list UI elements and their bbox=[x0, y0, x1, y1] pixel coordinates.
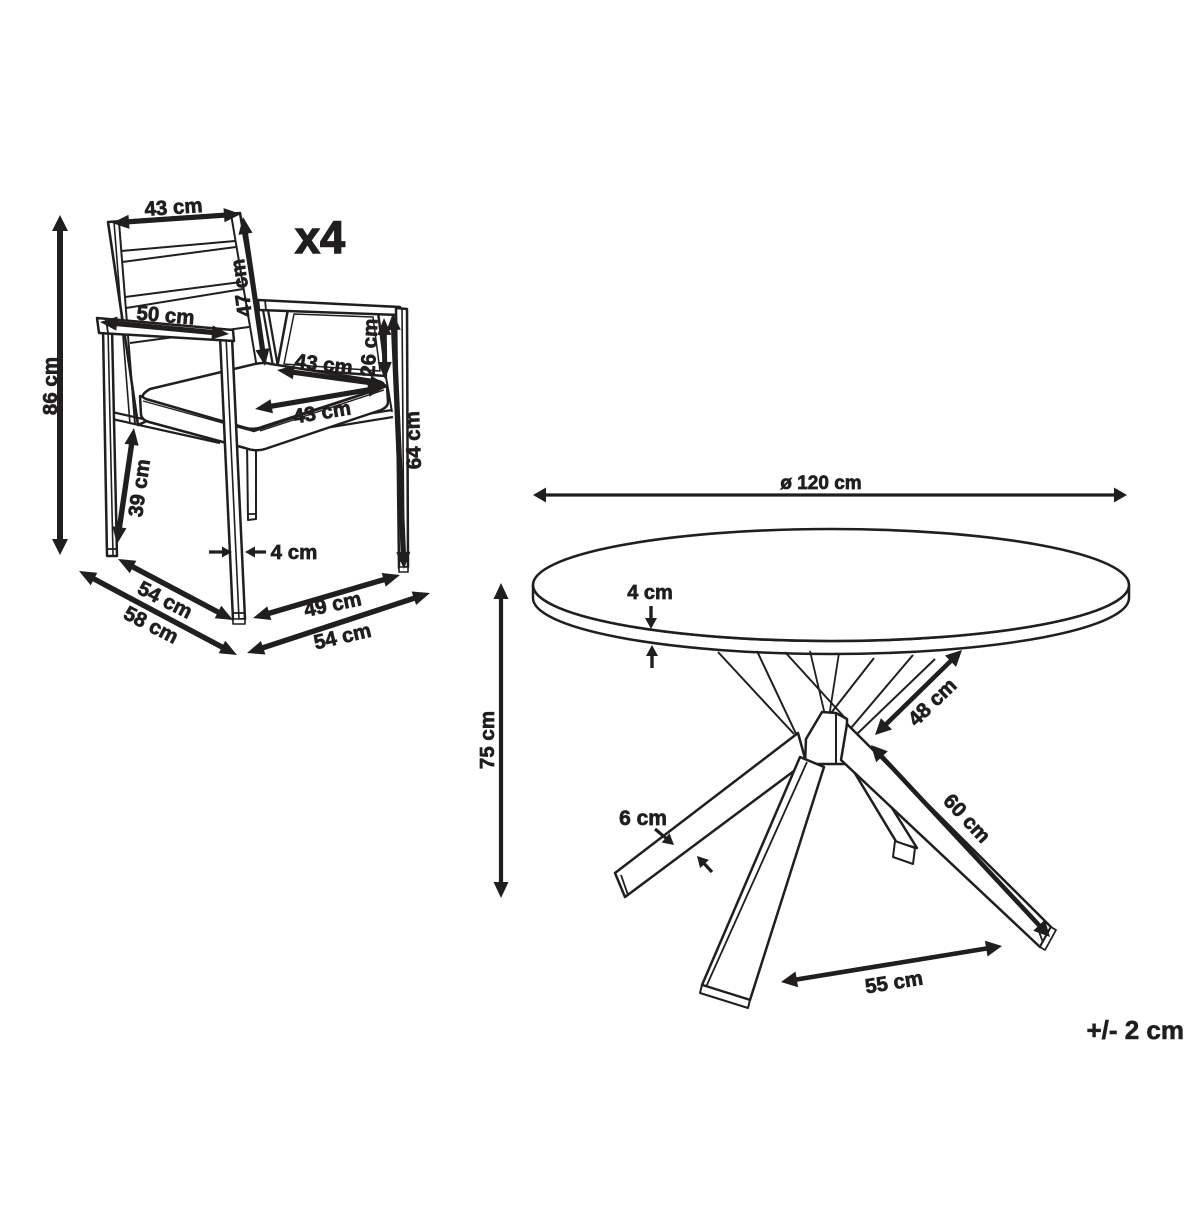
svg-text:43 cm: 43 cm bbox=[144, 194, 204, 221]
svg-text:4 cm: 4 cm bbox=[271, 541, 318, 564]
svg-text:75 cm: 75 cm bbox=[476, 711, 499, 769]
svg-text:x4: x4 bbox=[295, 212, 345, 263]
svg-text:+/- 2 cm: +/- 2 cm bbox=[1086, 1015, 1184, 1045]
svg-text:26 cm: 26 cm bbox=[357, 318, 383, 377]
svg-text:6 cm: 6 cm bbox=[619, 807, 667, 830]
svg-text:64 cm: 64 cm bbox=[401, 411, 426, 470]
svg-text:ø 120 cm: ø 120 cm bbox=[780, 473, 861, 494]
svg-text:4 cm: 4 cm bbox=[627, 582, 673, 604]
svg-text:86 cm: 86 cm bbox=[39, 357, 62, 415]
